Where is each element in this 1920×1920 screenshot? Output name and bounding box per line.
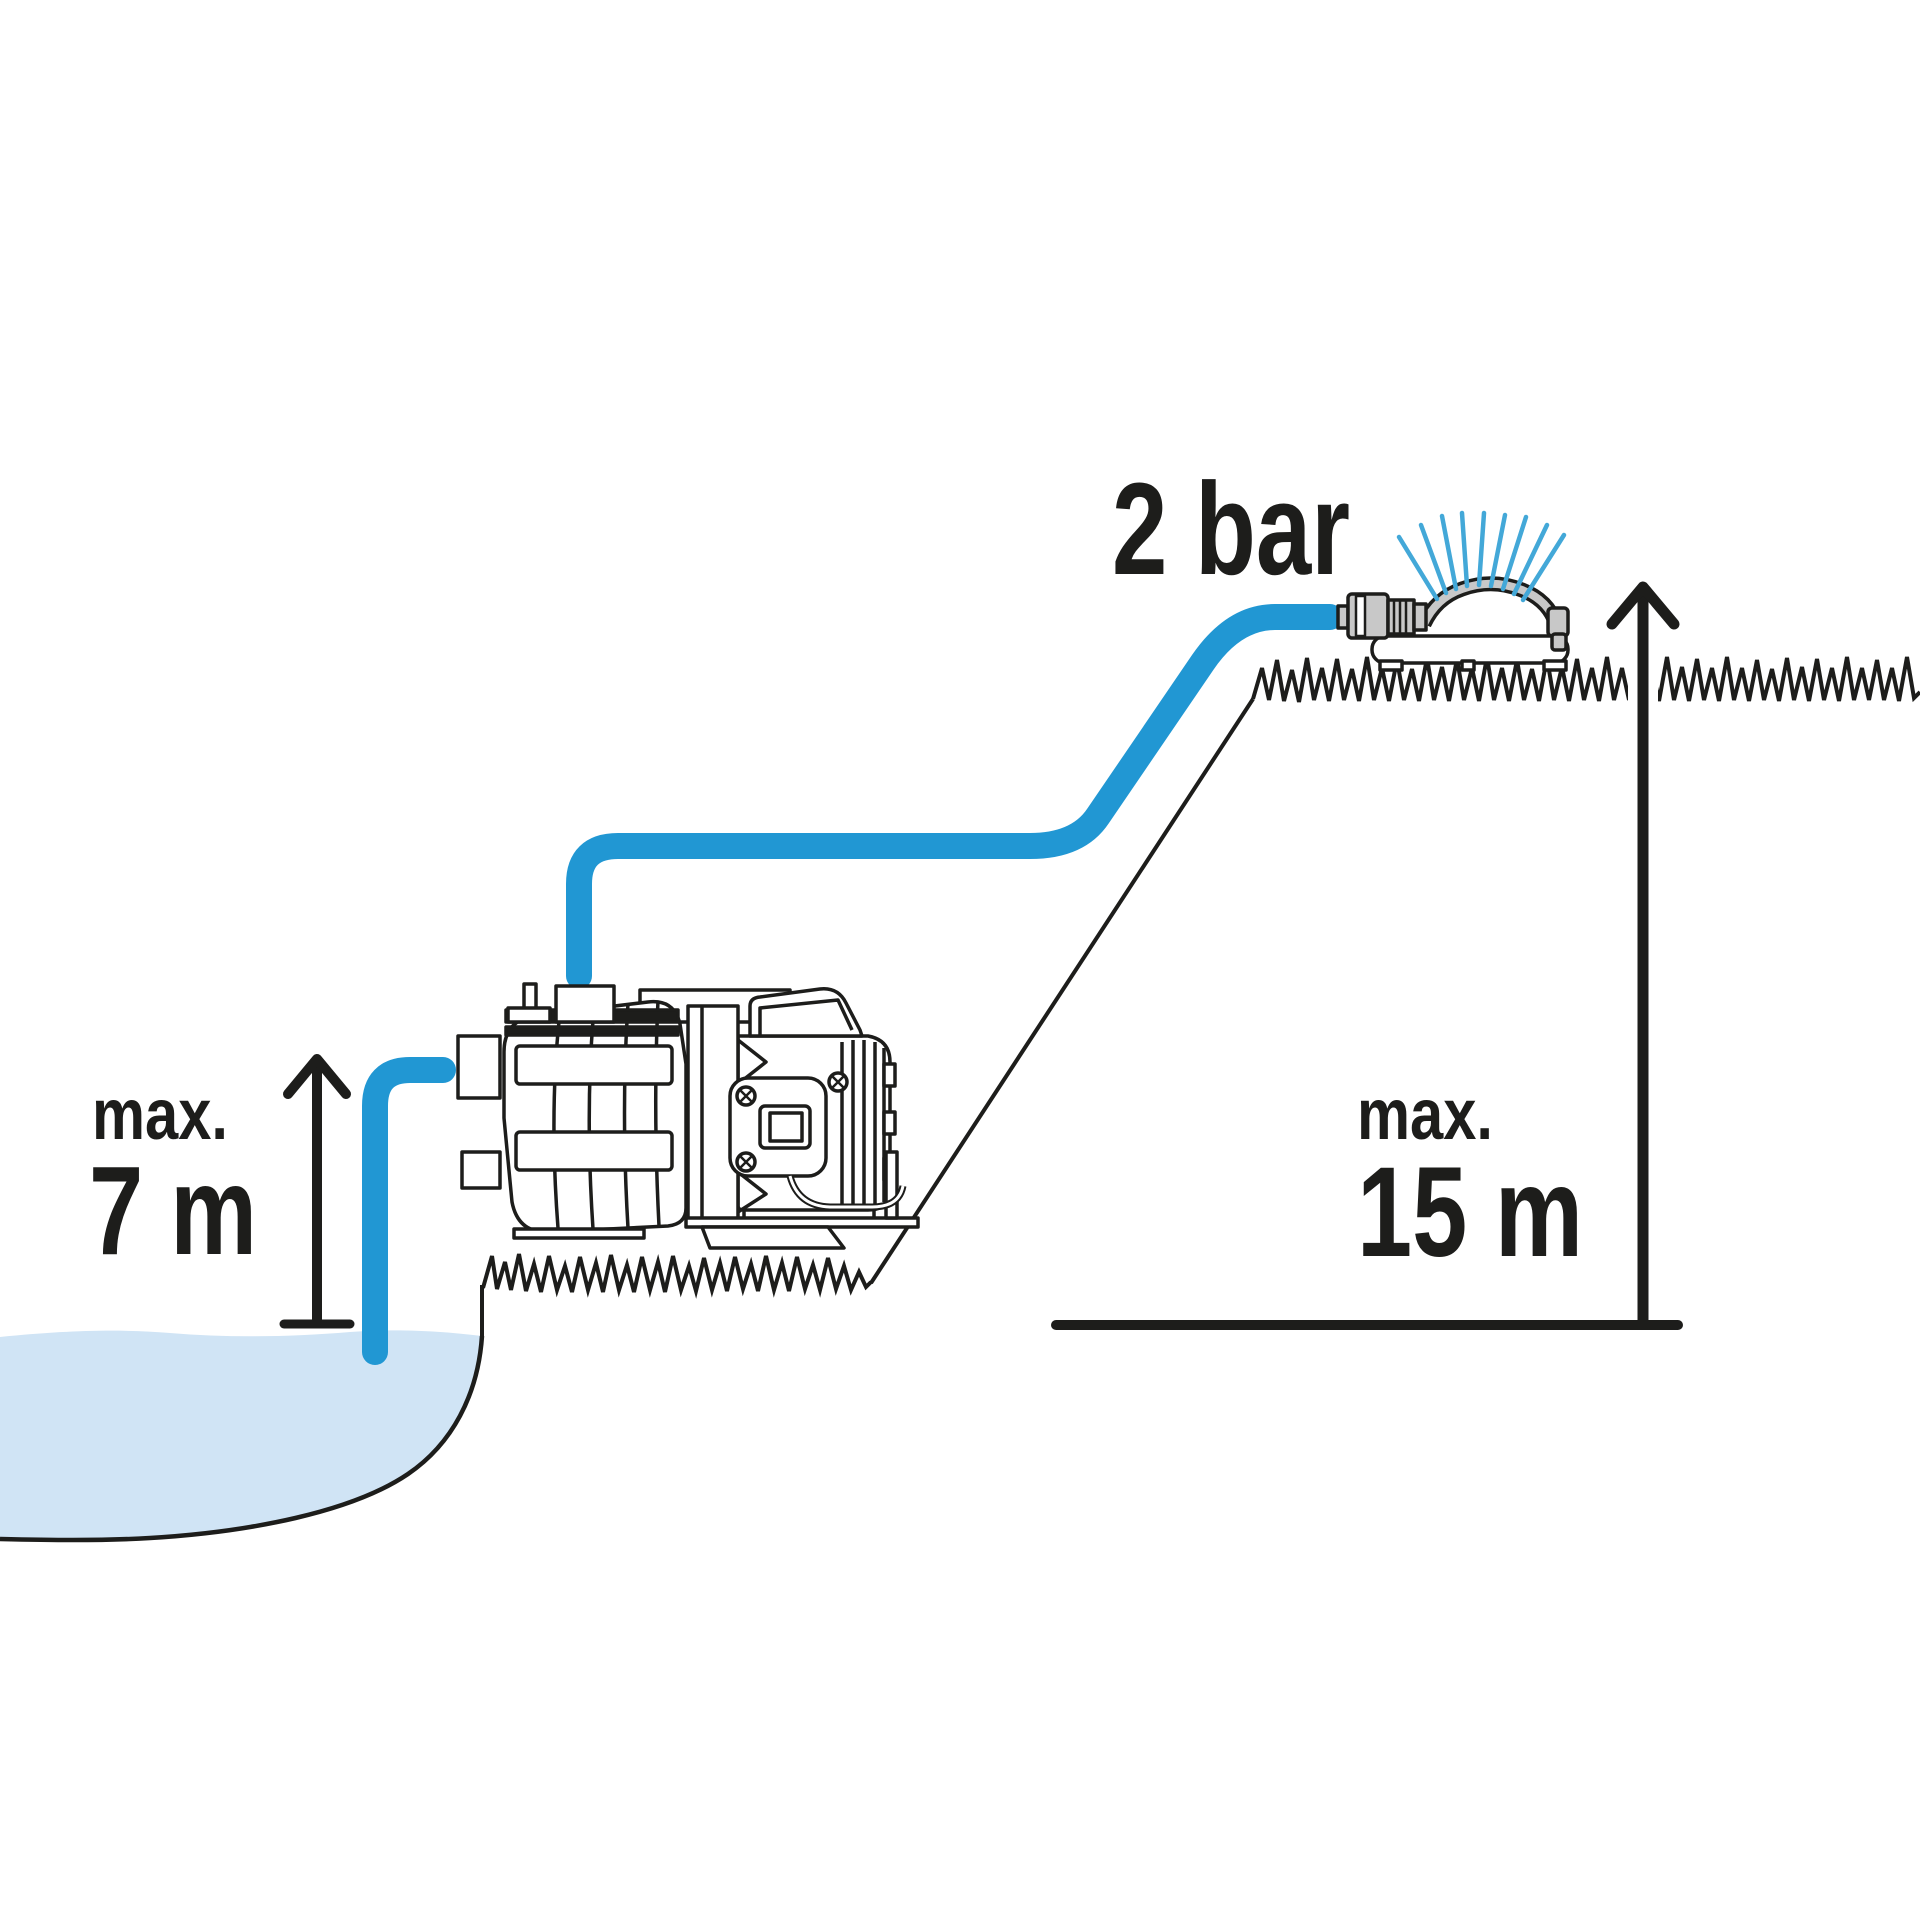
- grass-plateau: [1253, 657, 1920, 702]
- pump-inlet-stub: [458, 1036, 500, 1098]
- sprinkler-end-cap: [1548, 608, 1568, 636]
- sprinkler-foot-right: [1544, 661, 1566, 670]
- delivery-hose: [579, 617, 1330, 976]
- sprinkler-foot-left: [1380, 661, 1402, 670]
- grass-lower: [483, 1254, 871, 1292]
- pressure-label: 2 bar: [1112, 455, 1350, 602]
- pump-filler-port: [556, 986, 614, 1022]
- pump-housing-strap-top: [516, 1046, 672, 1084]
- suction-height-value: 7 m: [89, 1140, 257, 1281]
- garden-pump-illustration: [458, 984, 918, 1248]
- pump-drain-stub: [462, 1152, 500, 1188]
- hill-slope-line: [871, 699, 1253, 1283]
- water-fill: [0, 1330, 482, 1540]
- sprinkler-base: [1372, 636, 1568, 663]
- pump-panel-window-inner: [770, 1113, 802, 1141]
- pond: [0, 1285, 482, 1540]
- diagram-canvas: 2 bar max. 7 m max. 15 m: [0, 0, 1920, 1920]
- delivery-height-value: 15 m: [1357, 1141, 1583, 1284]
- pump-height-diagram: 2 bar max. 7 m max. 15 m: [0, 0, 1920, 1920]
- sprinkler-connector-body: [1348, 594, 1388, 638]
- pump-housing-strap-bottom: [516, 1132, 672, 1170]
- suction-hose: [375, 1070, 443, 1352]
- oscillating-sprinkler-illustration: [1338, 584, 1568, 670]
- sprinkler-adapter: [1414, 604, 1426, 630]
- pump-stand-foot: [702, 1227, 844, 1248]
- sprinkler-foot-middle: [1462, 661, 1474, 670]
- suction-height-arrow: [284, 1059, 350, 1324]
- pump-vent-valve-bar: [508, 1008, 550, 1022]
- pump-front-foot: [514, 1229, 644, 1238]
